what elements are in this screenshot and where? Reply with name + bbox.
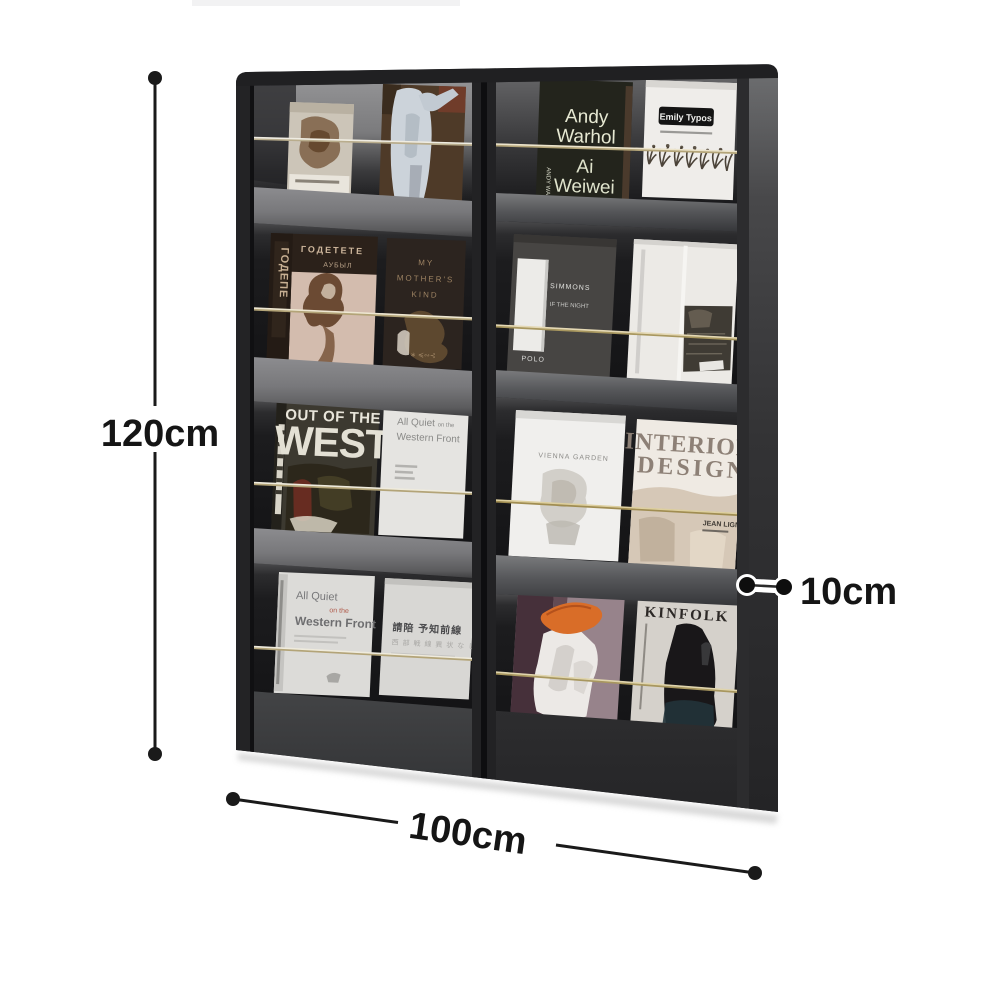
svg-text:on the: on the	[329, 607, 349, 615]
svg-text:10cm: 10cm	[800, 571, 897, 613]
svg-text:MY: MY	[418, 258, 434, 268]
svg-text:Weiwei: Weiwei	[553, 176, 615, 199]
svg-text:∗ ≼∾⊰: ∗ ≼∾⊰	[410, 352, 436, 360]
svg-text:All Quiet: All Quiet	[296, 590, 338, 604]
svg-text:Warhol: Warhol	[556, 126, 616, 149]
svg-text:Ai: Ai	[576, 156, 594, 178]
svg-text:WEST: WEST	[274, 417, 391, 468]
svg-text:POLO: POLO	[521, 356, 545, 364]
svg-text:KIND: KIND	[411, 290, 438, 300]
svg-text:Emily Typos: Emily Typos	[659, 111, 712, 123]
svg-text:120cm: 120cm	[101, 413, 219, 455]
svg-text:Andy: Andy	[565, 106, 610, 129]
svg-text:ГОДЕПЕ: ГОДЕПЕ	[277, 247, 291, 298]
svg-text:АУБЫЛ: АУБЫЛ	[323, 262, 352, 270]
